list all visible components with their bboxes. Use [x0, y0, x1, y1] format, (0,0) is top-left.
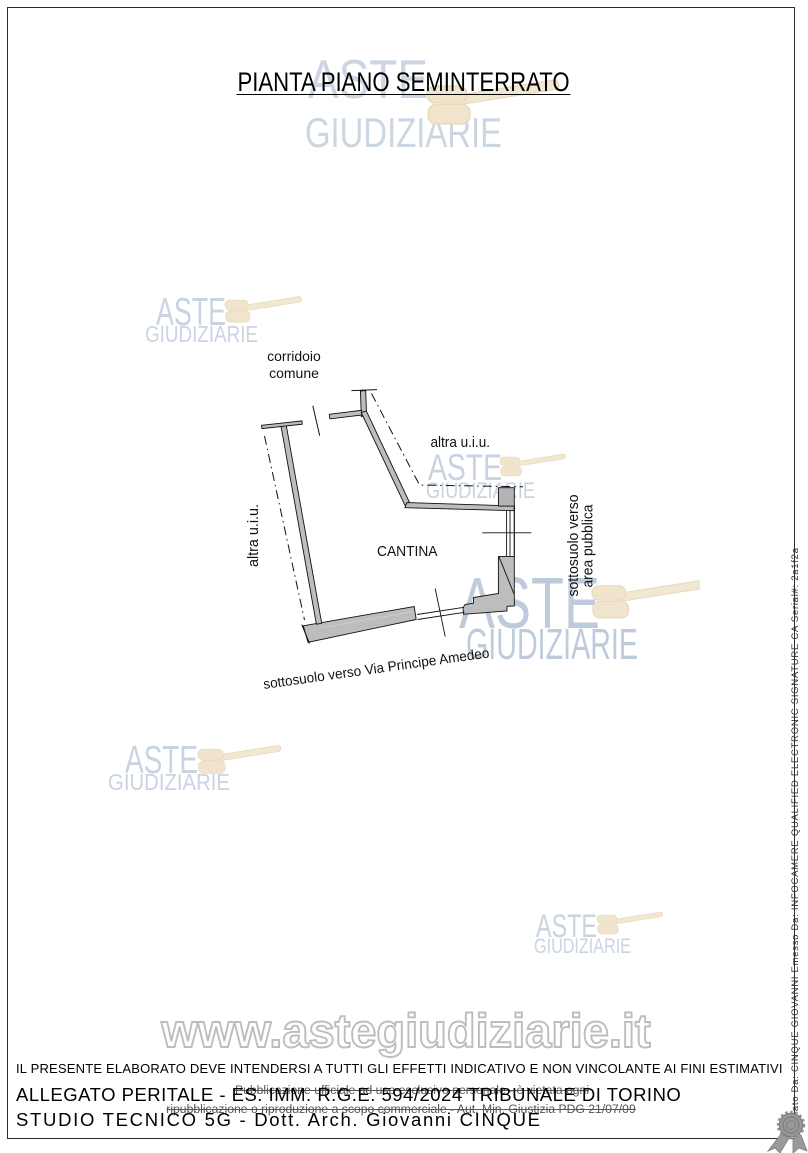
- svg-text:corridoio: corridoio: [267, 348, 321, 364]
- svg-text:comune: comune: [269, 365, 319, 381]
- svg-text:www.astegiudiziarie.it: www.astegiudiziarie.it: [160, 1004, 651, 1057]
- svg-text:Firmato Da: CINQUE GIOVANNI Em: Firmato Da: CINQUE GIOVANNI Emesso Da: I…: [790, 547, 801, 1133]
- svg-text:area pubblica: area pubblica: [581, 504, 597, 588]
- svg-text:sottosuolo verso Via Principe: sottosuolo verso Via Principe Amedeo: [262, 644, 490, 692]
- svg-text:GIUDIZIARIE: GIUDIZIARIE: [534, 935, 631, 958]
- svg-text:altra u.i.u.: altra u.i.u.: [246, 504, 262, 567]
- svg-text:CANTINA: CANTINA: [377, 543, 438, 560]
- svg-text:altra u.i.u.: altra u.i.u.: [431, 435, 491, 451]
- svg-text:GIUDIZIARIE: GIUDIZIARIE: [305, 109, 502, 156]
